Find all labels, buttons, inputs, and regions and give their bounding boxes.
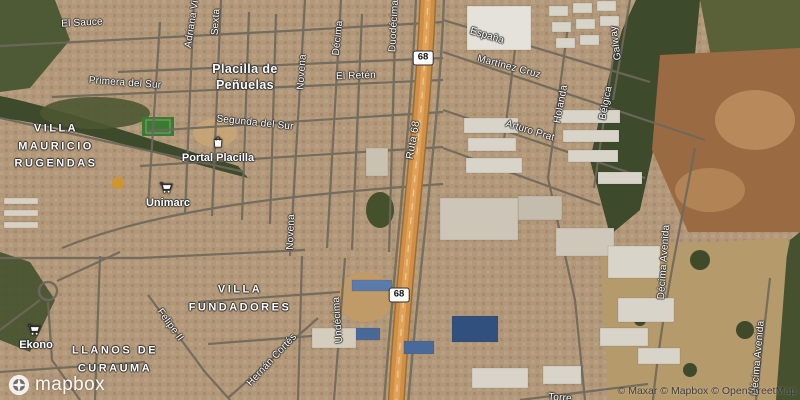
street-label: Arturo Prat bbox=[504, 118, 556, 143]
street-label: Duodécima bbox=[387, 0, 401, 52]
area-label-line: VILLA bbox=[189, 281, 292, 299]
street-label: Galway bbox=[608, 25, 624, 61]
map-canvas[interactable]: Placilla dePeñuelasVILLAMAURICIORUGENDAS… bbox=[0, 0, 800, 400]
area-label-line: RUGENDAS bbox=[15, 156, 98, 174]
street-label: Holanda bbox=[552, 84, 570, 124]
poi-label: Portal Placilla bbox=[182, 152, 254, 164]
route-label: Ruta 68 bbox=[404, 120, 423, 160]
poi-label: Unimarc bbox=[146, 197, 190, 209]
street-label: Sexta bbox=[210, 8, 223, 35]
mapbox-logo[interactable]: mapbox bbox=[8, 374, 105, 396]
shopping-bag-icon bbox=[212, 136, 224, 149]
mapbox-logo-icon bbox=[8, 374, 30, 396]
map-labels-layer: Placilla dePeñuelasVILLAMAURICIORUGENDAS… bbox=[0, 0, 800, 400]
street-label: Adriana Vi bbox=[183, 0, 201, 49]
street-label: Primera del Sur bbox=[88, 75, 161, 91]
street-label: El Retén bbox=[336, 70, 376, 82]
street-label: Felipe II bbox=[155, 307, 186, 344]
area-label: VILLAFUNDADORES bbox=[189, 281, 292, 316]
map-attribution[interactable]: © Maxar © Mapbox © OpenStreetMap bbox=[618, 385, 796, 397]
area-label-line: LLANOS DE bbox=[72, 342, 158, 360]
area-label: LLANOS DECURAUMA bbox=[72, 342, 158, 377]
area-label-line: FUNDADORES bbox=[189, 299, 292, 317]
town-label: Placilla dePeñuelas bbox=[212, 61, 278, 94]
town-label-line: Placilla de bbox=[212, 61, 278, 77]
street-label: Segunda del Sur bbox=[216, 113, 294, 132]
town-label-line: Peñuelas bbox=[212, 77, 278, 93]
route-shield: 68 bbox=[389, 288, 410, 303]
shopping-cart-icon bbox=[159, 182, 173, 195]
street-label: Novena bbox=[295, 54, 308, 90]
area-label: VILLAMAURICIORUGENDAS bbox=[15, 121, 98, 174]
street-label: Martínez Cruz bbox=[476, 53, 542, 81]
mapbox-logo-text: mapbox bbox=[35, 374, 105, 396]
street-label: Torre bbox=[548, 392, 573, 400]
street-label: El Sauce bbox=[61, 16, 103, 29]
poi-label: Ekono bbox=[19, 339, 53, 351]
street-label: Bélgica bbox=[597, 85, 614, 121]
street-label: Décima bbox=[331, 20, 346, 56]
area-label-line: VILLA bbox=[15, 121, 98, 139]
street-label: España bbox=[469, 26, 506, 47]
street-label: Hernán Cortés bbox=[245, 332, 299, 389]
street-label: Décima Avenida bbox=[656, 224, 672, 299]
route-shield: 68 bbox=[413, 51, 434, 66]
street-label: Novena bbox=[285, 214, 297, 250]
area-label-line: MAURICIO bbox=[15, 138, 98, 156]
shopping-cart-icon bbox=[27, 324, 41, 337]
street-label: Undécima bbox=[331, 296, 345, 343]
